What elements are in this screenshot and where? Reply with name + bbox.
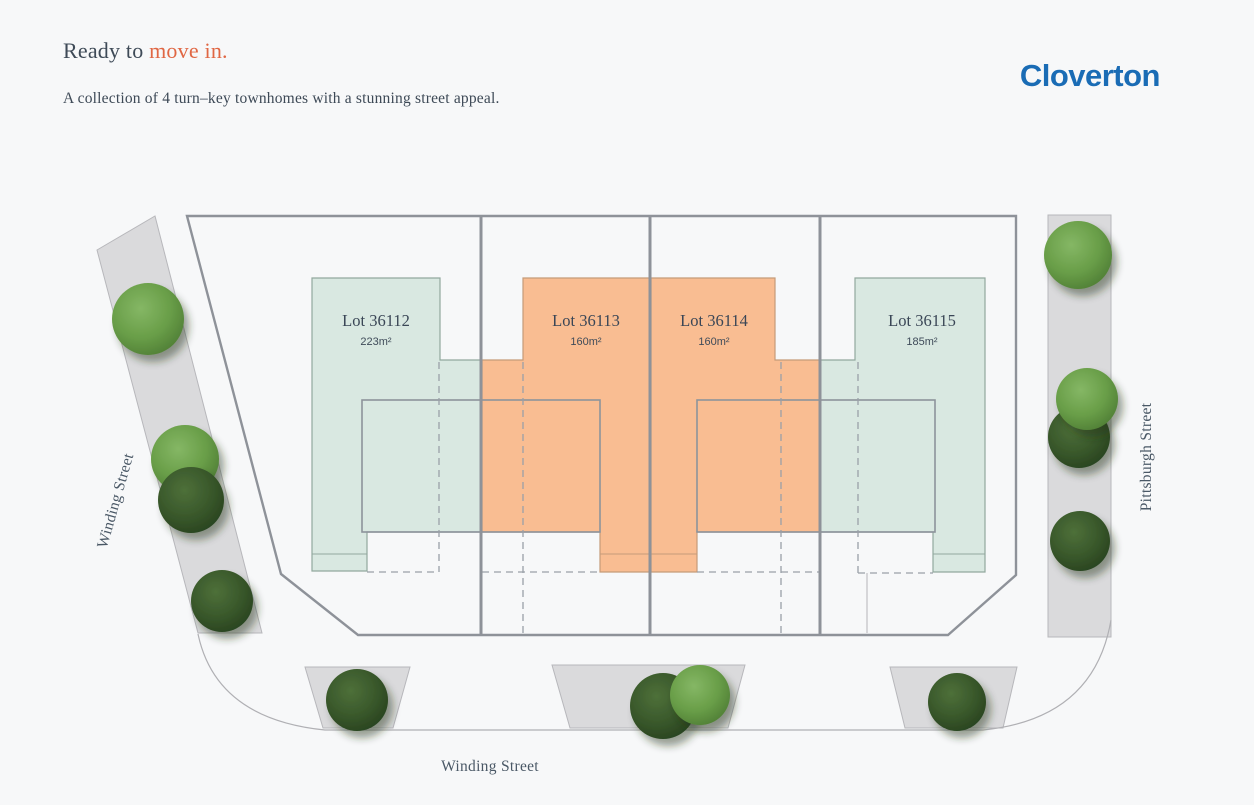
lot-36112-area: 223m² (360, 336, 392, 348)
lot-36114-area: 160m² (698, 336, 730, 348)
tree (1056, 368, 1118, 430)
site-plan-map: Lot 36112 223m² Lot 36113 160m² Lot 3611… (0, 0, 1254, 805)
tree (326, 669, 388, 731)
tree (928, 673, 986, 731)
tree (158, 467, 224, 533)
street-verge-left (97, 216, 262, 633)
tree (670, 665, 730, 725)
tree (1050, 511, 1110, 571)
lot-36113-label: Lot 36113 (552, 311, 620, 330)
lot-36114-label: Lot 36114 (680, 311, 748, 330)
street-label-bottom: Winding Street (441, 758, 539, 775)
lot-36112-label: Lot 36112 (342, 311, 410, 330)
tree (191, 570, 253, 632)
tree (1044, 221, 1112, 289)
tree (112, 283, 184, 355)
lot-36115-label: Lot 36115 (888, 311, 956, 330)
street-label-left: Winding Street (94, 451, 137, 550)
street-label-right: Pittsburgh Street (1138, 402, 1155, 511)
lot-36113-area: 160m² (570, 336, 602, 348)
page: { "header": { "title_prefix": "Ready to … (0, 0, 1254, 805)
lot-36115-area: 185m² (906, 336, 938, 348)
